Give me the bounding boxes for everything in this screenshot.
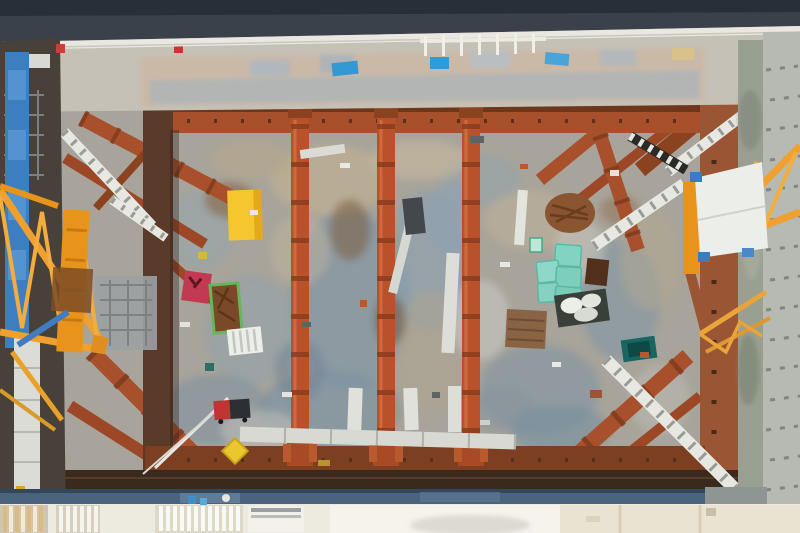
bottom-fence-right [155,505,243,533]
small-teal-marker [530,238,542,252]
aerial-photo-canvas [0,0,800,533]
bottom-outer-zone [0,487,800,533]
white-post-1 [347,388,362,430]
teal-container-3 [555,266,581,287]
left-ledge-box [28,54,50,68]
bottom-fence-mid [56,505,100,533]
crane-base-brown [51,267,93,313]
right-waler-beam [700,100,740,470]
white-post-3 [448,386,461,432]
ledge-texture [140,48,705,106]
ladder-frame [227,326,264,355]
tarp-blue-2 [430,57,449,69]
tarp-blue-1 [331,61,358,77]
blue-clamp-2 [698,252,710,262]
textured-wall-right [763,32,800,506]
white-dot [222,494,230,502]
rebar-pile [545,193,595,233]
blue-clamp-3 [742,248,754,257]
bottom-wall-dark-band [55,470,743,492]
left-red-marker [56,44,65,53]
white-post-2 [403,388,418,430]
bottom-fence-left [0,505,48,533]
brown-crate [585,258,610,286]
blue-bit-1 [188,496,196,504]
tarp-blue-3 [545,52,570,66]
blue-clamp-1 [690,172,702,182]
bottom-beige-boxes [560,505,800,533]
right-outer-zone [737,32,800,506]
crane-panel-white [695,162,768,258]
material-crate-red [181,270,212,303]
material-crate-green [210,283,242,333]
ledge-pallet [672,48,694,60]
construction-site-photo [0,0,800,533]
dark-equipment-box [402,197,426,235]
bottom-white-panel [248,506,304,532]
blue-bit-2 [200,498,207,505]
bottom-gray-patch [705,487,767,506]
